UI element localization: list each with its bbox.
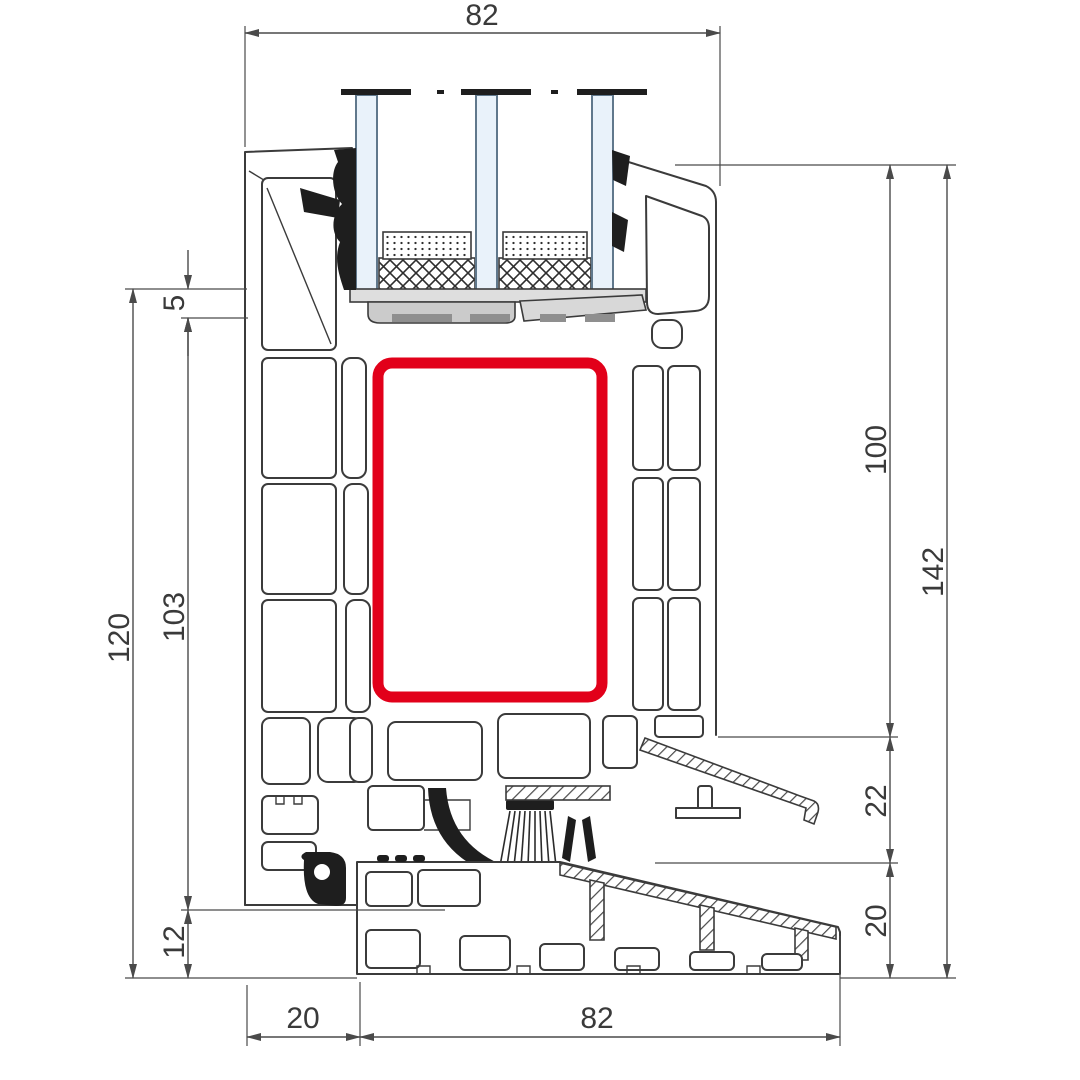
dim-bottom-offset: 20: [247, 982, 360, 1046]
dim-label-left-glass-inset: 5: [158, 295, 191, 312]
chamber: [668, 478, 700, 590]
dim-label-right-step: 22: [860, 784, 893, 817]
dim-right-inner-height: 100: [675, 165, 956, 737]
chamber: [262, 718, 310, 784]
dim-right-base: 20: [860, 863, 893, 978]
vent-slot: [585, 314, 615, 322]
dim-label-left-overall: 120: [103, 613, 136, 663]
threshold-hatched-post: [700, 905, 714, 950]
chamber: [633, 598, 663, 710]
chamber: [460, 936, 510, 970]
window-profile-cross-section: 82 120 5 103 12 100: [0, 0, 1080, 1080]
drip-arm-stem: [698, 786, 712, 810]
chamber: [262, 484, 336, 594]
glass-break-cap: [341, 89, 411, 95]
glazing-spacer-crosshatch: [379, 258, 475, 290]
chamber: [762, 954, 802, 970]
chamber: [368, 786, 424, 830]
threshold-profile: [357, 855, 840, 974]
glass-break-cap: [461, 89, 531, 95]
dim-label-top-width: 82: [465, 0, 498, 32]
glazing-bead-chamber: [646, 196, 709, 314]
glazing-spacer-desiccant: [383, 232, 471, 259]
glazing-gasket-right: [612, 150, 630, 186]
chamber: [633, 366, 663, 470]
chamber: [366, 930, 420, 968]
dim-label-left-frame-height: 103: [158, 592, 191, 642]
chamber: [346, 600, 370, 712]
dim-label-bottom-offset: 20: [286, 1002, 319, 1035]
brush-seal: [500, 811, 556, 866]
chamber: [540, 944, 584, 970]
glass-pane: [356, 95, 377, 291]
chamber: [344, 484, 368, 594]
v-gasket: [562, 816, 576, 862]
drip-arm: [640, 738, 819, 824]
v-gasket: [582, 816, 596, 862]
glass-break-dot: [437, 90, 444, 94]
threshold-gasket-bump: [377, 855, 389, 862]
glass-break-cap: [577, 89, 647, 95]
dim-label-right-inner: 100: [860, 425, 893, 475]
glazing-gasket-right: [612, 212, 628, 252]
chamber: [498, 714, 590, 778]
chamber: [262, 358, 336, 478]
dim-label-left-base: 12: [158, 925, 191, 958]
dim-left-glass-inset: 5: [158, 250, 248, 356]
dim-left-base: 12: [158, 910, 191, 978]
clamp-aluminium: [506, 786, 610, 800]
glass-pane: [592, 95, 613, 291]
vent-slot: [540, 314, 566, 322]
chamber: [668, 366, 700, 470]
chamber: [690, 952, 734, 970]
threshold-gasket-bump: [395, 855, 407, 862]
drip-arm-base: [676, 808, 740, 818]
chamber: [350, 718, 372, 782]
dim-right-overall-height: 142: [840, 165, 956, 978]
glass-pane: [476, 95, 497, 291]
bead-clip: [652, 320, 682, 348]
chamber: [603, 716, 637, 768]
chamber: [262, 796, 318, 834]
brush-seal-holder: [506, 800, 554, 810]
chamber: [342, 358, 366, 478]
glass-break-dot: [551, 90, 558, 94]
chamber: [366, 872, 412, 906]
chamber: [418, 870, 480, 906]
glazing-unit: [341, 89, 647, 323]
glazing-spacer-desiccant: [503, 232, 587, 259]
steel-reinforcement-chamber-highlight: [378, 363, 602, 697]
glazing-spacer-crosshatch: [499, 258, 591, 290]
threshold-hatched-post: [590, 880, 604, 940]
vent-slot: [470, 314, 510, 322]
dim-label-right-overall: 142: [917, 547, 950, 597]
chamber: [668, 598, 700, 710]
frame-foot-gasket-core: [314, 864, 330, 880]
chamber: [262, 600, 336, 712]
chamber: [633, 478, 663, 590]
dim-label-bottom-width: 82: [580, 1002, 613, 1035]
chamber: [388, 722, 482, 780]
dim-label-right-base: 20: [860, 904, 893, 937]
threshold-gasket-bump: [413, 855, 425, 862]
diagram-canvas: 82 120 5 103 12 100: [0, 0, 1080, 1080]
vent-slot: [392, 314, 452, 322]
chamber: [655, 716, 703, 737]
